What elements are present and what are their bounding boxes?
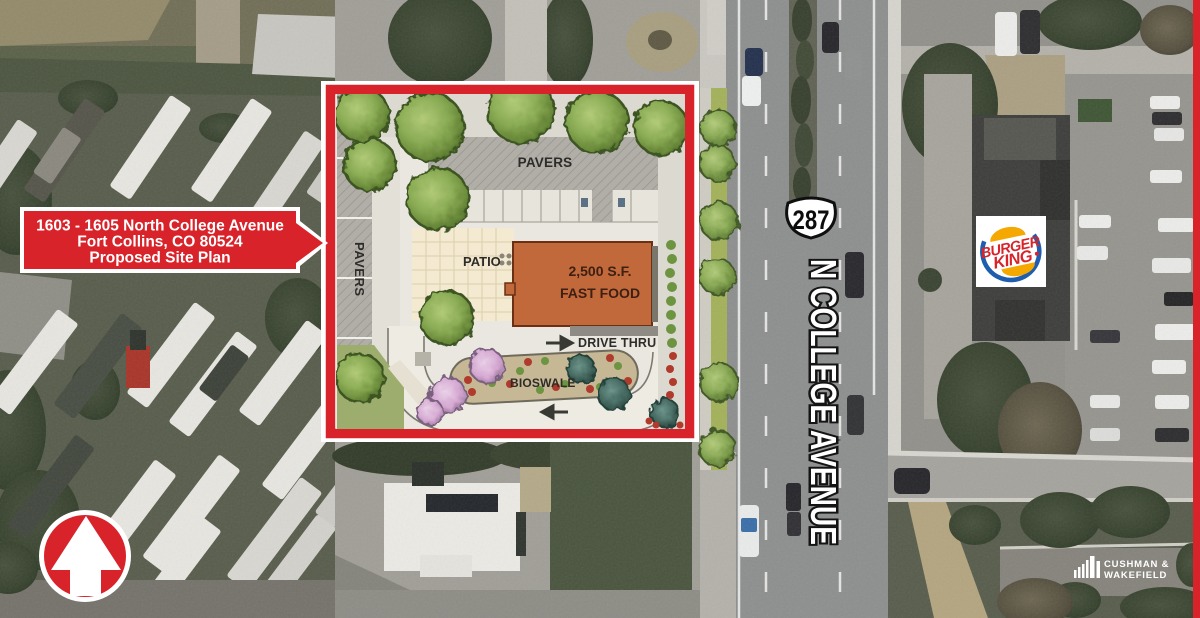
svg-text:WAKEFIELD: WAKEFIELD	[1104, 570, 1167, 581]
svg-text:PAVERS: PAVERS	[518, 155, 573, 170]
svg-text:287: 287	[793, 205, 830, 235]
svg-text:Fort Collins, CO 80524: Fort Collins, CO 80524	[77, 234, 243, 251]
svg-text:FAST FOOD: FAST FOOD	[560, 285, 640, 301]
svg-text:PAVERS: PAVERS	[352, 242, 367, 297]
svg-text:N COLLEGE AVENUE: N COLLEGE AVENUE	[803, 259, 844, 545]
svg-text:DRIVE THRU: DRIVE THRU	[578, 336, 656, 350]
svg-text:2,500 S.F.: 2,500 S.F.	[568, 263, 631, 279]
svg-text:BIOSWALE: BIOSWALE	[510, 376, 576, 390]
svg-text:CUSHMAN &: CUSHMAN &	[1104, 559, 1169, 570]
svg-text:PATIO: PATIO	[463, 254, 501, 269]
svg-text:1603 - 1605 North College Aven: 1603 - 1605 North College Avenue	[36, 218, 284, 235]
svg-text:Proposed Site Plan: Proposed Site Plan	[89, 250, 230, 267]
